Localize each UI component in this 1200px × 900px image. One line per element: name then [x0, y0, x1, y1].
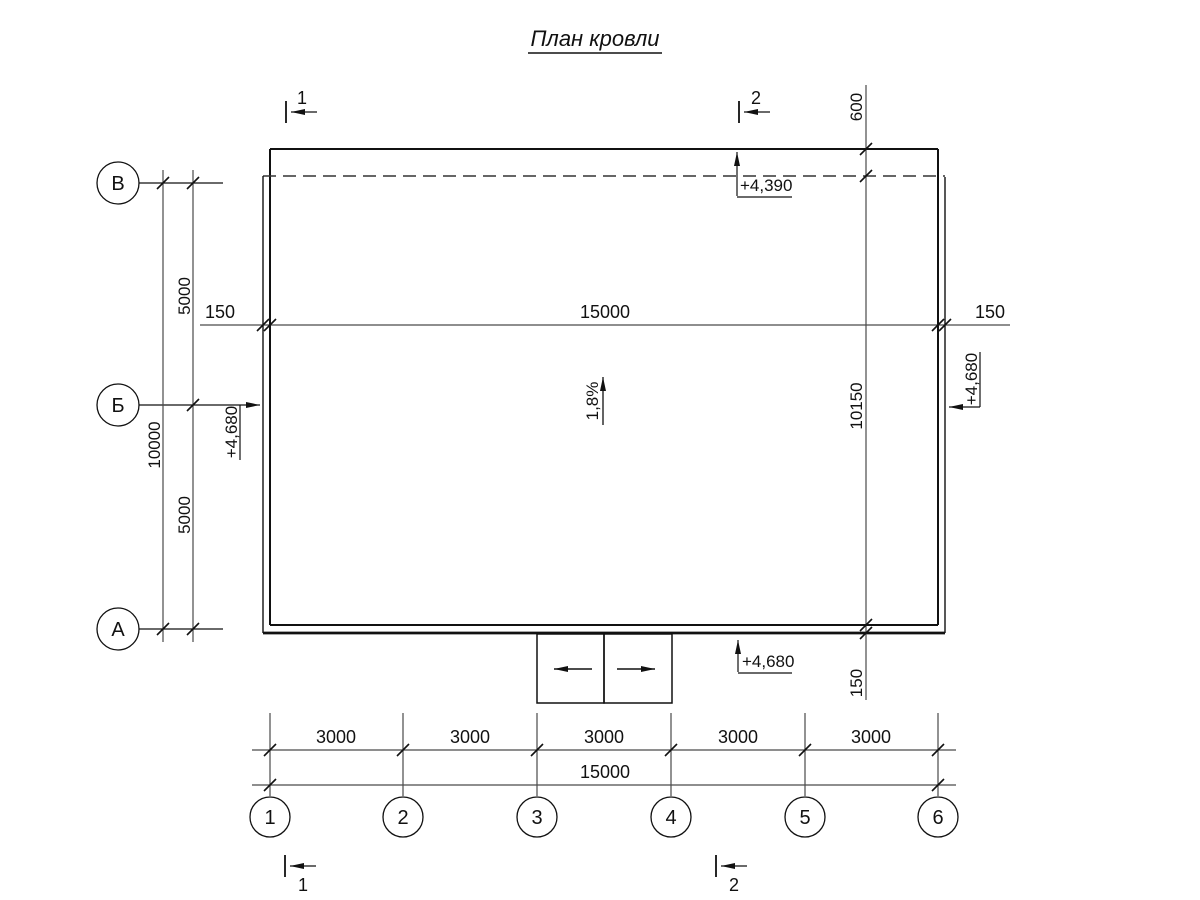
bottom-dimensions: 3000 3000 3000 3000 3000 15000	[252, 713, 956, 796]
roof-hatch	[537, 634, 672, 703]
dim-bay-2: 3000	[450, 727, 490, 747]
axis-label-b: Б	[111, 395, 124, 417]
dim-left-total-10000: 10000	[145, 421, 164, 468]
axis-label-4: 4	[665, 807, 676, 829]
slope-annotation: 1,8%	[583, 377, 603, 425]
section-2-bottom-label: 2	[729, 875, 739, 895]
roof-plan-drawing: План кровли В Б А 5	[0, 0, 1200, 900]
elevation-bottom: +4,680	[738, 640, 794, 673]
dim-top-15000: 15000	[580, 302, 630, 322]
left-dimensions: 5000 10000 5000	[145, 170, 199, 642]
dim-top-left-150: 150	[205, 302, 235, 322]
dim-right-150: 150	[847, 669, 866, 697]
slope-value: 1,8%	[583, 382, 602, 421]
elevation-left-value: +4,680	[222, 406, 241, 458]
axis-label-1: 1	[264, 807, 275, 829]
dim-left-upper-5000: 5000	[175, 277, 194, 315]
column-axes: 1 2 3 4 5 6	[250, 797, 958, 837]
elevation-roof-top: +4,390	[737, 152, 792, 197]
elevation-bottom-value: +4,680	[742, 652, 794, 671]
section-2-top-label: 2	[751, 88, 761, 108]
dim-right-10150: 10150	[847, 382, 866, 429]
dim-left-lower-5000: 5000	[175, 496, 194, 534]
roof-outline	[263, 149, 945, 633]
drawing-title: План кровли	[530, 26, 659, 51]
roof-plan-sheet: План кровли В Б А 5	[0, 0, 1200, 900]
axis-label-5: 5	[799, 807, 810, 829]
dim-bay-3: 3000	[584, 727, 624, 747]
dim-bay-1: 3000	[316, 727, 356, 747]
axis-label-6: 6	[932, 807, 943, 829]
elevation-left: +4,680	[222, 405, 241, 460]
elevation-right-value: +4,680	[962, 353, 981, 405]
axis-label-3: 3	[531, 807, 542, 829]
section-1-bottom-label: 1	[298, 875, 308, 895]
elevation-right: +4,680	[949, 352, 981, 407]
dim-bay-4: 3000	[718, 727, 758, 747]
top-dimensions: 150 15000 150	[200, 302, 1010, 331]
axis-label-a: А	[111, 619, 125, 641]
dim-right-600: 600	[847, 93, 866, 121]
elevation-top-value: +4,390	[740, 176, 792, 195]
right-dimensions: 600 10150 150	[847, 85, 872, 700]
dim-top-right-150: 150	[975, 302, 1005, 322]
section-marks-bottom: 1 2	[285, 855, 747, 895]
dim-bottom-15000: 15000	[580, 762, 630, 782]
section-marks-top: 1 2	[286, 88, 770, 123]
dim-bay-5: 3000	[851, 727, 891, 747]
axis-label-v: В	[111, 173, 124, 195]
section-1-top-label: 1	[297, 88, 307, 108]
axis-label-2: 2	[397, 807, 408, 829]
